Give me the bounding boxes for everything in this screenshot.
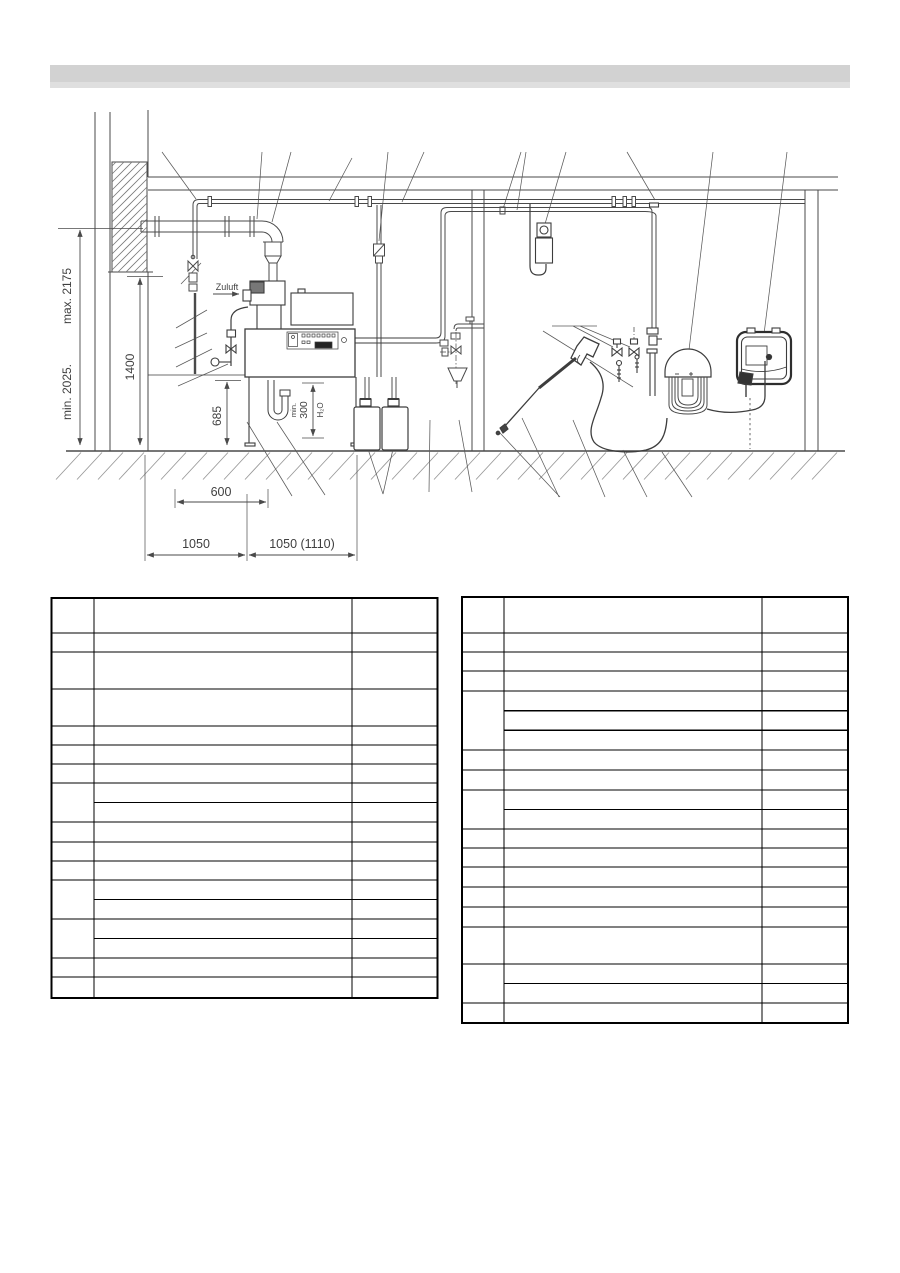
flue-pipe (141, 216, 283, 282)
title-bar-placeholder (50, 65, 850, 88)
hatch-line (119, 453, 144, 480)
hatch-line (728, 453, 753, 480)
pipe-coupling (623, 197, 627, 207)
parts-table-right (462, 597, 848, 1023)
dim-label-siphon-300: 300 (298, 401, 310, 419)
hatch-line (392, 453, 417, 480)
remote-control (530, 204, 553, 275)
hatch-line (329, 453, 354, 480)
floor-hatching (56, 453, 837, 480)
control-panel (287, 332, 347, 349)
hatch-line (749, 453, 774, 480)
drain-funnel (448, 368, 467, 381)
pressure-gauge (211, 358, 219, 366)
spare-valves-and-screws (612, 327, 639, 382)
dim-label-685: 685 (210, 406, 224, 426)
dim-label-siphon-h2o: H₂O (316, 402, 325, 417)
hatch-line (791, 453, 816, 480)
hatch-line (560, 453, 585, 480)
outlet-fittings (647, 203, 662, 396)
hatch-line (112, 162, 140, 190)
manual-page: max. 2175 min. 2025. 1400 685 min. 300 H… (0, 0, 900, 1273)
hatch-line (602, 453, 627, 480)
wall-hatching (112, 162, 147, 272)
fuel-filter-device (374, 205, 385, 377)
hatch-line (770, 453, 795, 480)
air-supply-label: Zuluft (216, 282, 239, 292)
dim-label-min-height: min. 2025. (60, 364, 74, 420)
hatch-line (112, 162, 116, 166)
canister (354, 407, 380, 450)
hatch-line (77, 453, 102, 480)
hatch-line (140, 453, 165, 480)
hatch-line (350, 453, 375, 480)
hatch-line (266, 453, 291, 480)
hatch-line (497, 453, 522, 480)
dim-label-1050: 1050 (182, 537, 210, 551)
hatch-line (686, 453, 711, 480)
hatch-line (245, 453, 270, 480)
hatch-line (56, 453, 81, 480)
fuel-shutoff-valve (188, 255, 198, 291)
hatch-line (581, 453, 606, 480)
hatch-line (413, 453, 438, 480)
hatch-line (371, 453, 396, 480)
hatch-line (112, 162, 132, 182)
hose-reel (737, 328, 791, 397)
building-structure (66, 110, 845, 451)
dimensions (58, 229, 357, 562)
dim-label-1050-alt: 1050 (1110) (269, 537, 335, 551)
dim-label-siphon-min: min. (289, 403, 298, 417)
hatch-line (182, 453, 207, 480)
hatch-line (224, 453, 249, 480)
drain-siphon (268, 380, 290, 420)
hatch-line (142, 267, 147, 272)
installation-diagram: max. 2175 min. 2025. 1400 685 min. 300 H… (0, 0, 900, 1273)
flue-elbow (262, 221, 283, 242)
water-inlet-assembly (440, 317, 484, 388)
pipe-coupling (632, 197, 636, 207)
washroom-equipment (496, 203, 791, 452)
hatch-line (476, 453, 501, 480)
canister (382, 407, 408, 450)
hatch-line (98, 453, 123, 480)
hatch-line (434, 453, 459, 480)
pipe-coupling (612, 197, 616, 207)
pipe-coupling (368, 197, 372, 207)
hp-drop-pipe (645, 208, 656, 329)
dim-label-600: 600 (211, 485, 232, 499)
hatch-line (126, 251, 147, 272)
pipe-coupling (355, 197, 359, 207)
pipe-clamp (500, 207, 505, 214)
tap-handle (466, 317, 474, 321)
backflow-preventer (451, 333, 460, 339)
dim-label-1400: 1400 (123, 353, 137, 380)
suction-hoses (365, 377, 396, 400)
hatch-line (161, 453, 186, 480)
hatch-line (812, 453, 837, 480)
pipe-coupling (208, 197, 212, 207)
hatch-line (203, 453, 228, 480)
hatch-line (707, 453, 732, 480)
unit-top-section (291, 293, 353, 325)
dim-label-max-height: max. 2175 (60, 268, 74, 324)
hatch-line (539, 453, 564, 480)
air-intake-port (243, 290, 251, 301)
hatch-line (134, 259, 147, 272)
hose-hanger (665, 349, 711, 414)
hatch-line (118, 243, 147, 272)
spray-gun-and-lance (496, 337, 599, 435)
parts-table-left (52, 598, 438, 998)
detergent-canisters (354, 399, 408, 450)
